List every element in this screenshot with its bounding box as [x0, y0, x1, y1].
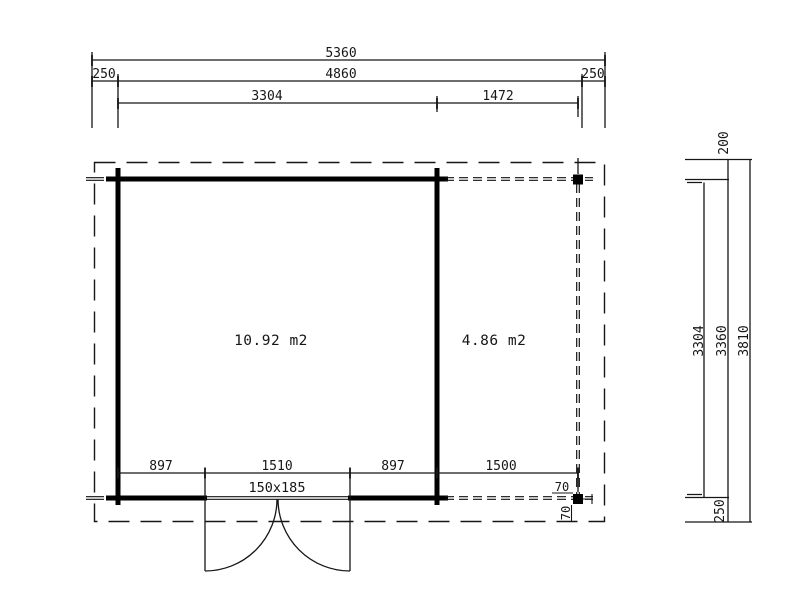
- terrace-top-edge: [445, 178, 593, 181]
- dim-total-width: 5360: [325, 46, 356, 61]
- top-extension-lines: [92, 52, 605, 128]
- dim-total-depth: 3810: [737, 325, 752, 356]
- dim-overhang-right: 250: [581, 67, 604, 82]
- corner-post-top-right: [573, 175, 583, 185]
- door-swing-right: [278, 499, 350, 571]
- dim-door-opening: 1510: [261, 459, 292, 474]
- dim-outer-depth: 3360: [715, 325, 730, 356]
- dim-body-width: 4860: [325, 67, 356, 82]
- top-dimension-block: 5360 250 4860 250 3304 1472: [92, 46, 605, 128]
- dim-wall-to-door: 897: [149, 459, 172, 474]
- dim-inner-depth: 3304: [692, 325, 707, 356]
- terrace-edges: [445, 158, 593, 504]
- main-room-area-label: 10.92 m2: [234, 333, 308, 349]
- corner-post-bottom-right: [573, 494, 583, 504]
- dim-door-to-wall: 897: [381, 459, 404, 474]
- door-swing-left: [205, 499, 277, 571]
- dim-terrace-bottom: 1500: [485, 459, 516, 474]
- door-size-label: 150x185: [249, 480, 306, 496]
- dim-overhang-left: 250: [92, 67, 115, 82]
- terrace-right-edge: [577, 184, 580, 494]
- top-dimension-ticks: [92, 55, 605, 109]
- terrace-area-label: 4.86 m2: [462, 333, 527, 349]
- floor-plan-canvas: 5360 250 4860 250 3304 1472 150x185 10.9…: [0, 0, 800, 600]
- dim-terrace-width: 1472: [482, 89, 513, 104]
- floor-plan-page: 5360 250 4860 250 3304 1472 150x185 10.9…: [0, 0, 800, 600]
- terrace-bottom-edge: [445, 497, 593, 500]
- dim-room-width: 3304: [251, 89, 282, 104]
- dim-post-offset-h: 70: [555, 480, 569, 494]
- door-threshold: [207, 497, 348, 500]
- bottom-dimension-block: 897 1510 897 1500 70 70: [118, 459, 592, 521]
- dim-overhang-top: 200: [717, 131, 732, 154]
- dim-overhang-bottom: 250: [713, 499, 728, 522]
- right-dimension-block: 200 3304 3360 3810 250: [685, 131, 752, 522]
- dim-post-offset-v: 70: [559, 506, 573, 520]
